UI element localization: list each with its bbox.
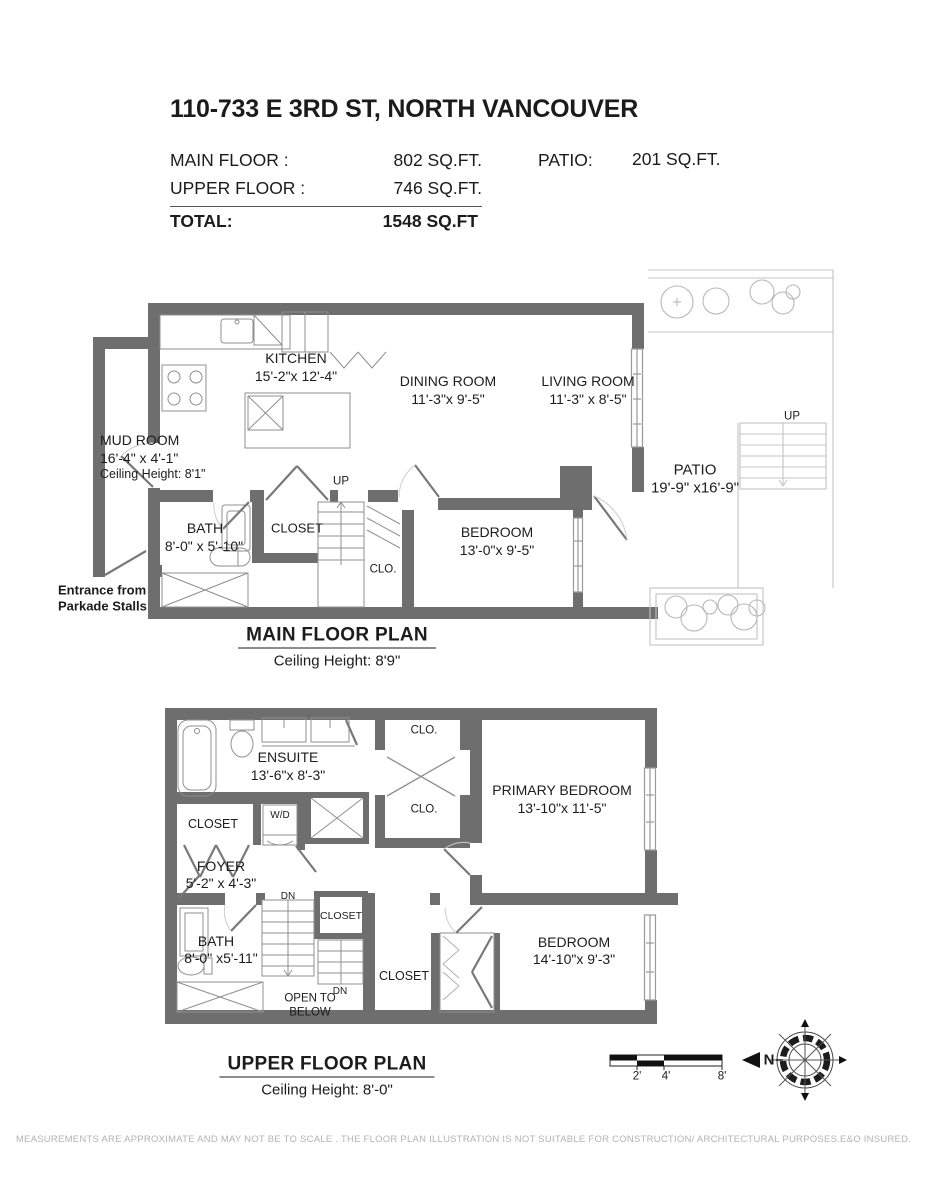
entrance-note-line2: Parkade Stalls: [58, 600, 147, 613]
room-dims-foyer: 5'-2" x 4'-3": [186, 876, 257, 890]
room-dims-bath: 8'-0" x 5'-10": [165, 539, 243, 553]
room-label-patio: PATIO: [674, 463, 717, 478]
room-dims-bath-upper: 8'-0" x5'-11": [184, 951, 257, 965]
scale-tick-2ft: 2': [633, 1071, 642, 1083]
upper-floor-plan-title: UPPER FLOOR PLAN: [219, 1055, 434, 1078]
stairs-dn-top-label: DN: [281, 892, 295, 902]
room-label-closet-left: CLOSET: [188, 818, 238, 831]
main-floor-plan-title: MAIN FLOOR PLAN: [238, 626, 436, 649]
compass-north-label: N: [764, 1052, 775, 1069]
room-label-bath: BATH: [187, 521, 223, 535]
room-label-clo-top: CLO.: [411, 725, 438, 737]
scale-bar: [610, 1055, 722, 1070]
room-label-bedroom: BEDROOM: [461, 525, 533, 539]
room-ceiling-mudroom: Ceiling Height: 8'1": [100, 468, 206, 481]
disclaimer-text: MEASUREMENTS ARE APPROXIMATE AND MAY NOT…: [0, 1134, 927, 1145]
total-divider: [170, 206, 482, 207]
room-dims-mudroom: 16'-4" x 4'-1": [100, 451, 178, 465]
room-label-foyer: FOYER: [197, 859, 245, 873]
patio-area-value: 201 SQ.FT.: [632, 149, 721, 170]
room-dims-ensuite: 13'-6"x 8'-3": [251, 768, 325, 782]
stairs-up-label: UP: [333, 476, 349, 488]
main-floor-area-label: MAIN FLOOR :: [170, 150, 289, 171]
room-label-dining: DINING ROOM: [400, 374, 496, 388]
room-dims-primary-bedroom: 13'-10"x 11'-5": [518, 801, 607, 815]
room-label-clo: CLO.: [370, 564, 397, 576]
page-title: 110-733 E 3RD ST, NORTH VANCOUVER: [170, 95, 638, 124]
total-area-label: TOTAL:: [170, 211, 233, 232]
room-dims-kitchen: 15'-2"x 12'-4": [255, 369, 337, 383]
entrance-note-line1: Entrance from: [58, 584, 146, 597]
main-floor-ceiling-height: Ceiling Height: 8'9": [274, 654, 401, 669]
room-label-ensuite: ENSUITE: [258, 750, 319, 764]
total-area-value: 1548 SQ.FT: [366, 211, 478, 232]
room-dims-living: 11'-3" x 8'-5": [549, 392, 626, 406]
main-floor-stairs: [318, 502, 364, 607]
room-dims-bedroom: 13'-0"x 9'-5": [460, 543, 534, 557]
room-label-primary-bedroom: PRIMARY BEDROOM: [492, 783, 632, 797]
room-label-kitchen: KITCHEN: [265, 351, 326, 365]
room-dims-bedroom-upper: 14'-10"x 9'-3": [533, 952, 615, 966]
compass-rose: [742, 1019, 847, 1101]
room-label-clo-bottom: CLO.: [411, 804, 438, 816]
washer-dryer-label: W/D: [270, 811, 289, 821]
open-to-below-line2: BELOW: [289, 1007, 331, 1019]
upper-floor-area-value: 746 SQ.FT.: [370, 178, 482, 199]
patio-stairs-up-label: UP: [784, 411, 800, 423]
patio-area-label: PATIO:: [538, 150, 593, 171]
room-label-closet-mid: CLOSET: [379, 970, 429, 983]
patio-group: [648, 270, 833, 645]
floorplan-page: 110-733 E 3RD ST, NORTH VANCOUVER MAIN F…: [0, 0, 927, 1200]
main-floor-area-value: 802 SQ.FT.: [370, 150, 482, 171]
room-dims-patio: 19'-9" x16'-9": [651, 481, 739, 496]
room-label-bedroom-upper: BEDROOM: [538, 935, 610, 949]
room-label-mudroom: MUD ROOM: [100, 433, 179, 447]
upper-floor-area-label: UPPER FLOOR :: [170, 178, 305, 199]
scale-tick-4ft: 4': [662, 1071, 671, 1083]
room-label-bath-upper: BATH: [198, 934, 234, 948]
room-label-living: LIVING ROOM: [541, 374, 634, 388]
room-label-closet-stairs: CLOSET: [320, 911, 362, 922]
upper-floor-ceiling-height: Ceiling Height: 8'-0": [261, 1083, 393, 1098]
scale-tick-8ft: 8': [718, 1071, 727, 1083]
room-dims-dining: 11'-3"x 9'-5": [411, 392, 484, 406]
room-label-closet: CLOSET: [271, 522, 323, 535]
open-to-below-line1: OPEN TO: [284, 993, 335, 1005]
